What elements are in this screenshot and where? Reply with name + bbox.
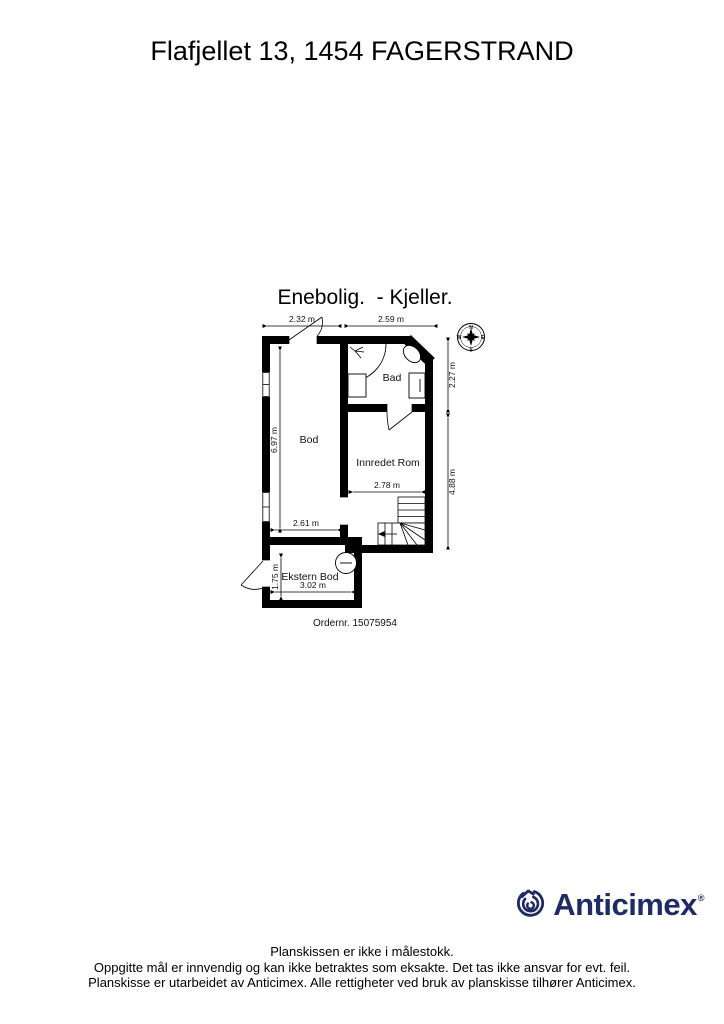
washer-icon bbox=[348, 374, 366, 397]
anticimex-logo: Anticimex® bbox=[514, 882, 704, 926]
planskisse-page: Flafjellet 13, 1454 FAGERSTRAND Enebolig… bbox=[0, 0, 724, 1024]
order-number: Ordernr. 15075954 bbox=[313, 618, 397, 629]
water-heater-icon bbox=[336, 553, 357, 574]
footer-line-2: Oppgitte mål er innvendig og kan ikke be… bbox=[0, 960, 724, 976]
registered-mark: ® bbox=[698, 893, 704, 903]
room-label-bad: Bad bbox=[383, 372, 402, 384]
dim-ekstern-height: 1.75 m bbox=[270, 564, 280, 590]
disclaimer-footer: Planskissen er ikke i målestokk. Oppgitt… bbox=[0, 944, 724, 991]
room-label-innredet: Innredet Rom bbox=[356, 457, 420, 469]
footer-line-1: Planskissen er ikke i målestokk. bbox=[0, 944, 724, 960]
anticimex-swirl-icon bbox=[514, 886, 547, 922]
room-label-bod: Bod bbox=[300, 434, 319, 446]
footer-line-3: Planskisse er utarbeidet av Anticimex. A… bbox=[0, 975, 724, 991]
dim-top-left: 2.32 m bbox=[289, 314, 315, 324]
dim-bad-height: 2.27 m bbox=[447, 362, 457, 388]
compass-west: W bbox=[457, 335, 462, 341]
compass-north: N bbox=[469, 325, 473, 331]
compass-rose-icon: N E S W bbox=[457, 324, 486, 354]
dim-innredet-height: 4.88 m bbox=[447, 469, 457, 495]
dim-innredet-width: 2.78 m bbox=[374, 480, 400, 490]
dim-top-right: 2.59 m bbox=[378, 314, 404, 324]
dim-bod-height: 6.97 m bbox=[269, 427, 279, 453]
door-ekstern-icon bbox=[241, 561, 263, 589]
room-label-ekstern: Ekstern Bod bbox=[281, 571, 338, 583]
shower-head-icon bbox=[350, 347, 364, 358]
toilet-icon bbox=[409, 373, 425, 398]
staircase bbox=[378, 497, 425, 545]
floor-plan: 2.32 m 2.59 m 2.27 m 4.88 m 6.97 m 2.61 … bbox=[0, 0, 724, 1024]
anticimex-wordmark: Anticimex® bbox=[553, 889, 704, 920]
dim-bod-width: 2.61 m bbox=[293, 518, 319, 528]
door-bad-icon bbox=[387, 412, 412, 430]
